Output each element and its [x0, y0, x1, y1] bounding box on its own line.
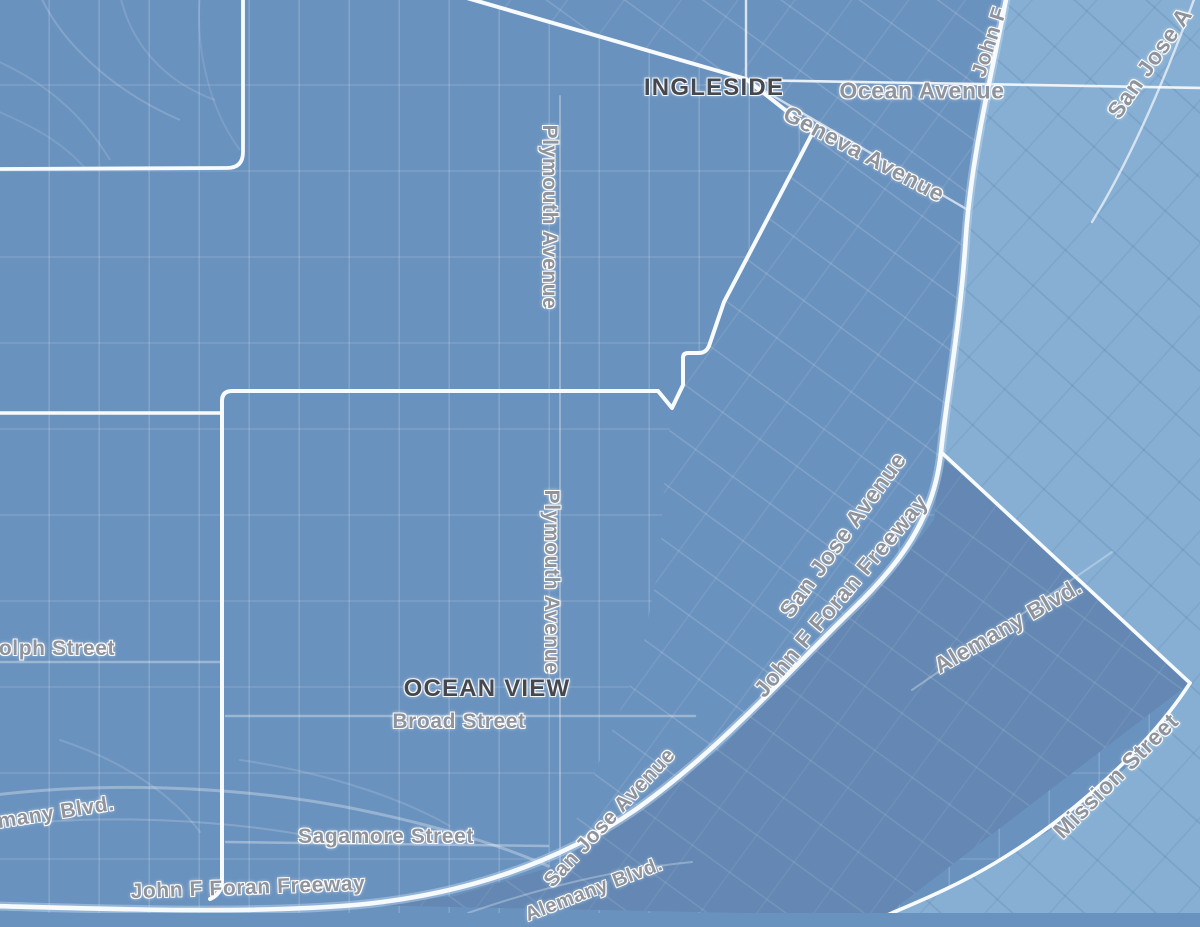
- map-render-layer: [0, 0, 1200, 913]
- map-canvas[interactable]: INGLESIDE OCEAN VIEW Ocean Avenue Geneva…: [0, 0, 1200, 913]
